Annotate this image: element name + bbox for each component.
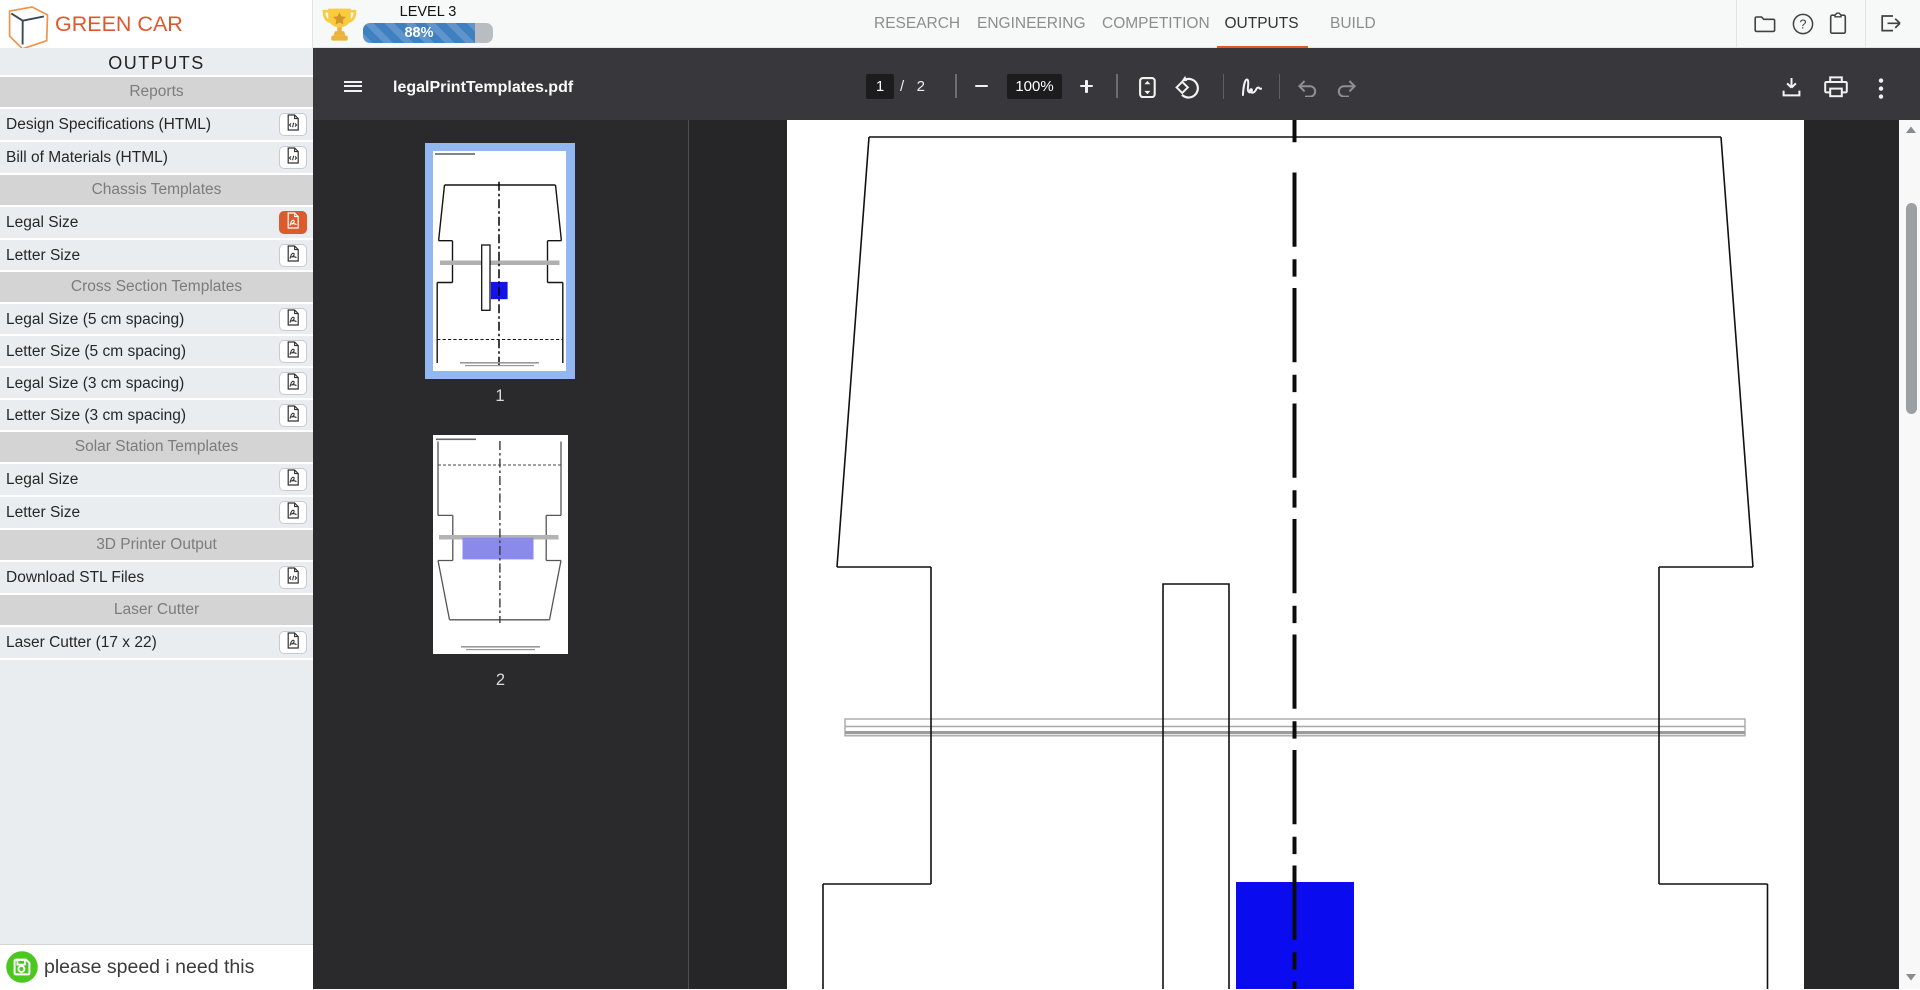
svg-text:?: ? bbox=[1800, 17, 1807, 31]
